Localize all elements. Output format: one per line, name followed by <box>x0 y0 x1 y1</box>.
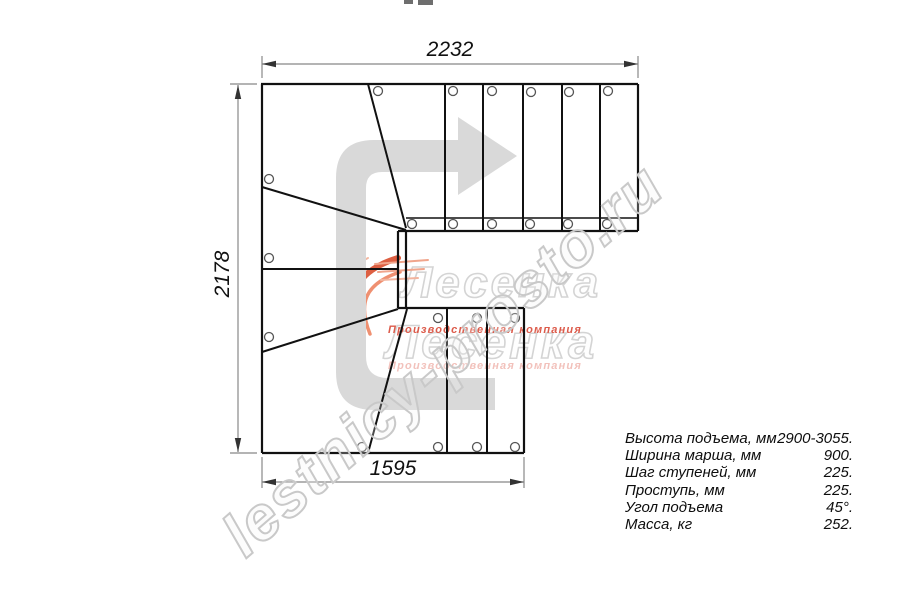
spec-value: 2900-3055. <box>777 430 853 447</box>
screw-hole <box>374 87 383 96</box>
screw-hole <box>408 220 417 229</box>
direction-arrow-icon <box>336 117 517 410</box>
dimension-label-top: 2232 <box>390 38 510 62</box>
screw-hole <box>358 443 367 452</box>
spec-label: Шаг ступеней, мм <box>625 464 756 481</box>
spec-row: Проступь, мм 225. <box>625 482 853 499</box>
spec-value: 225. <box>824 464 853 481</box>
spec-row: Масса, кг 252. <box>625 516 853 533</box>
winder-line <box>262 187 406 230</box>
screw-hole <box>473 443 482 452</box>
spec-label: Угол подъема <box>625 499 723 516</box>
dim-arrowhead <box>235 85 241 99</box>
cropped-title-fragment <box>404 0 413 4</box>
screw-hole <box>449 87 458 96</box>
screw-hole <box>526 220 535 229</box>
screw-hole <box>488 220 497 229</box>
spec-label: Ширина марша, мм <box>625 447 761 464</box>
spec-row: Ширина марша, мм 900. <box>625 447 853 464</box>
screw-hole <box>603 220 612 229</box>
winder-line <box>262 309 398 352</box>
spec-value: 900. <box>824 447 853 464</box>
screw-hole <box>604 87 613 96</box>
screw-hole <box>265 254 274 263</box>
screw-hole <box>527 88 536 97</box>
spec-row: Высота подъема, мм 2900-3055. <box>625 430 853 447</box>
spec-value: 252. <box>824 516 853 533</box>
screw-hole <box>488 87 497 96</box>
spec-row: Угол подъема 45°. <box>625 499 853 516</box>
screw-hole <box>473 314 482 323</box>
spec-label: Масса, кг <box>625 516 692 533</box>
dim-arrowhead <box>510 479 524 485</box>
dim-arrowhead <box>624 61 638 67</box>
screw-hole <box>434 443 443 452</box>
dim-arrowhead <box>262 61 276 67</box>
screw-hole <box>565 88 574 97</box>
screw-hole <box>511 443 520 452</box>
screw-hole <box>265 175 274 184</box>
screw-hole <box>511 314 520 323</box>
spec-table: Высота подъема, мм 2900-3055. Ширина мар… <box>625 430 853 533</box>
screw-hole <box>265 333 274 342</box>
spec-label: Высота подъема, мм <box>625 430 777 447</box>
dimension-label-left: 2178 <box>211 214 235 334</box>
spec-row: Шаг ступеней, мм 225. <box>625 464 853 481</box>
staircase-drawing-page: Лесенка Лесенка Производственная компани… <box>0 0 900 600</box>
spec-value: 45°. <box>826 499 853 516</box>
dimension-label-bottom: 1595 <box>333 457 453 481</box>
dim-arrowhead <box>262 479 276 485</box>
dim-arrowhead <box>235 438 241 452</box>
cropped-title-fragment <box>418 0 433 5</box>
screw-hole <box>434 314 443 323</box>
spec-value: 225. <box>824 482 853 499</box>
spec-label: Проступь, мм <box>625 482 725 499</box>
screw-hole <box>449 220 458 229</box>
screw-hole <box>564 220 573 229</box>
